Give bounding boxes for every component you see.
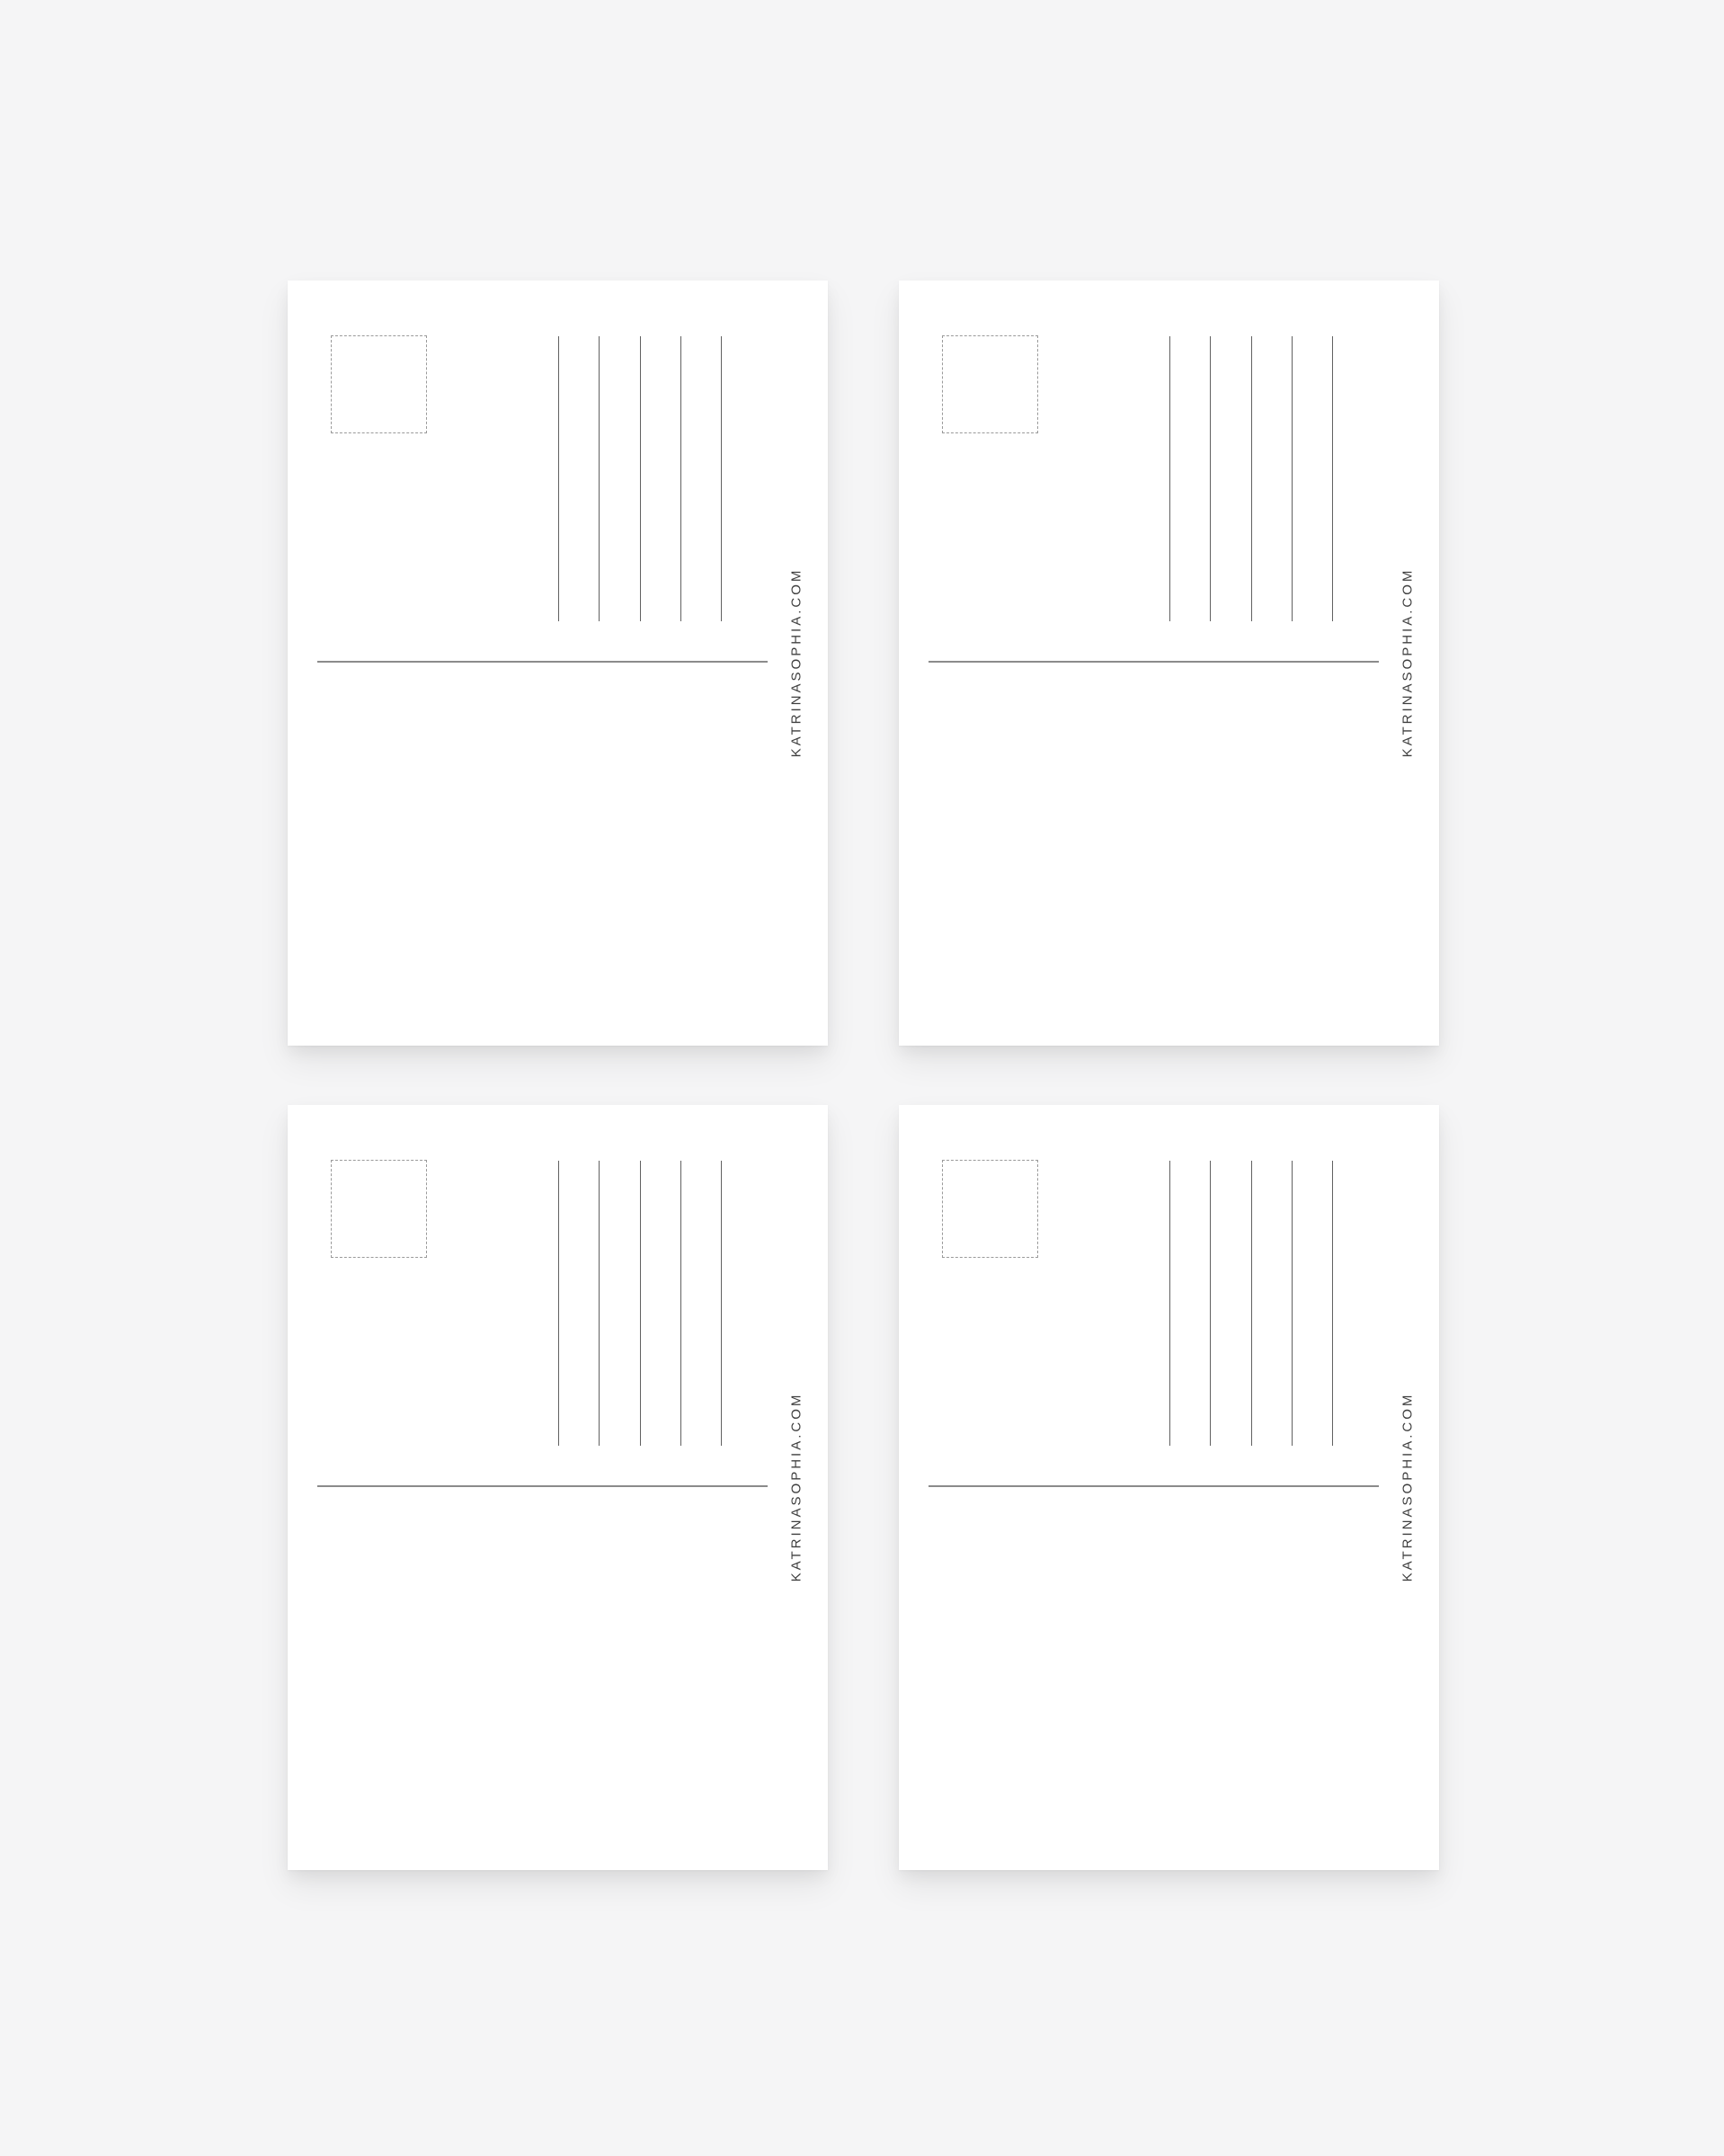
sender-divider-line [317, 661, 768, 663]
brand-website-text: KATRINASOPHIA.COM [790, 568, 804, 758]
brand-website-text: KATRINASOPHIA.COM [1401, 568, 1415, 758]
address-lines [1169, 336, 1333, 621]
stamp-box [331, 335, 427, 433]
stamp-box [942, 335, 1038, 433]
address-line [1169, 336, 1170, 621]
address-lines [1169, 1161, 1333, 1446]
address-line [1292, 336, 1293, 621]
postcard-back: KATRINASOPHIA.COM [899, 1105, 1439, 1870]
address-line [1210, 1161, 1211, 1446]
address-line [1251, 1161, 1252, 1446]
stamp-box [942, 1160, 1038, 1258]
address-line [599, 1161, 600, 1446]
address-line [640, 336, 641, 621]
postcard-back: KATRINASOPHIA.COM [288, 281, 828, 1046]
stamp-box [331, 1160, 427, 1258]
address-line [1292, 1161, 1293, 1446]
address-line [599, 336, 600, 621]
brand-website-text: KATRINASOPHIA.COM [1401, 1393, 1415, 1582]
postcard-grid: KATRINASOPHIA.COM KATRINASOPHIA.COM KATR… [288, 281, 1439, 1870]
address-line [721, 336, 722, 621]
postcard-back: KATRINASOPHIA.COM [288, 1105, 828, 1870]
address-line [1332, 336, 1333, 621]
address-lines [558, 336, 722, 621]
sender-divider-line [929, 1485, 1379, 1487]
address-lines [558, 1161, 722, 1446]
address-line [680, 336, 681, 621]
sender-divider-line [929, 661, 1379, 663]
address-line [1332, 1161, 1333, 1446]
postcard-back: KATRINASOPHIA.COM [899, 281, 1439, 1046]
address-line [558, 336, 559, 621]
address-line [1251, 336, 1252, 621]
address-line [640, 1161, 641, 1446]
address-line [1169, 1161, 1170, 1446]
address-line [680, 1161, 681, 1446]
address-line [721, 1161, 722, 1446]
brand-website-text: KATRINASOPHIA.COM [790, 1393, 804, 1582]
address-line [1210, 336, 1211, 621]
sender-divider-line [317, 1485, 768, 1487]
address-line [558, 1161, 559, 1446]
